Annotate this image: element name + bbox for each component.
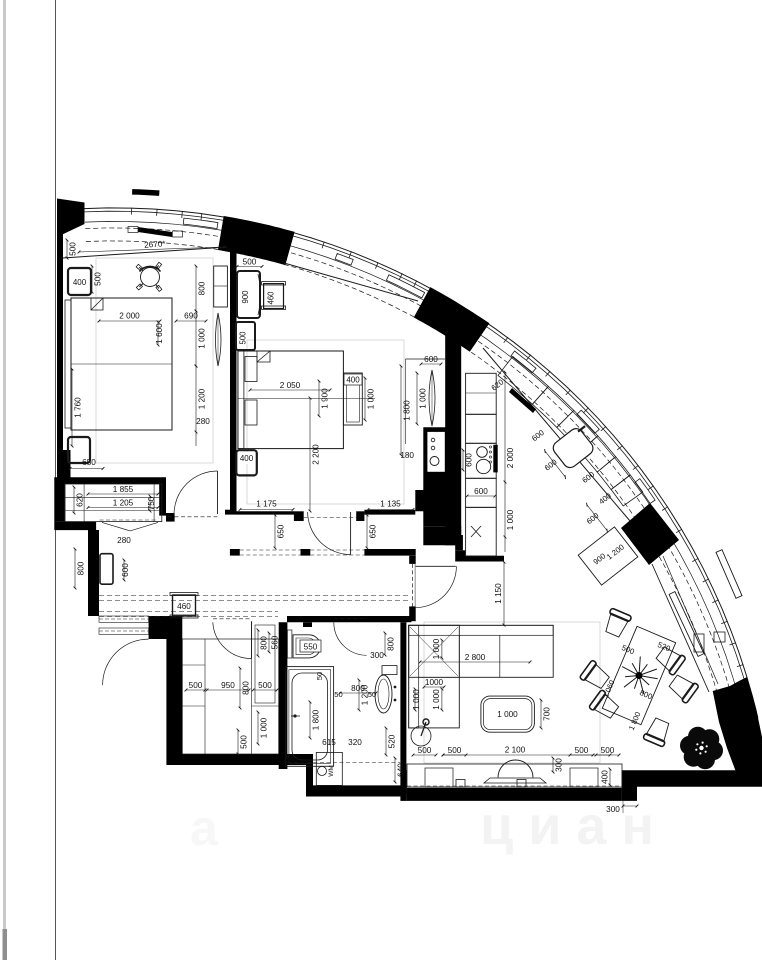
svg-text:2 200: 2 200 — [311, 444, 320, 465]
svg-text:2 100: 2 100 — [505, 746, 526, 755]
svg-text:900: 900 — [241, 290, 250, 304]
svg-text:600: 600 — [424, 355, 438, 364]
svg-text:1 000: 1 000 — [412, 689, 421, 710]
svg-text:1 175: 1 175 — [256, 500, 277, 509]
svg-text:500: 500 — [239, 735, 248, 749]
svg-text:500: 500 — [418, 746, 432, 755]
svg-text:WM: WM — [328, 765, 335, 777]
svg-text:600: 600 — [121, 563, 130, 577]
svg-text:1 000: 1 000 — [432, 638, 441, 659]
svg-text:1 150: 1 150 — [494, 583, 503, 604]
svg-text:600: 600 — [464, 453, 473, 467]
svg-text:400: 400 — [600, 770, 609, 784]
svg-text:650: 650 — [82, 458, 96, 467]
svg-text:800: 800 — [259, 636, 268, 650]
svg-text:500: 500 — [448, 746, 462, 755]
svg-text:циан: циан — [480, 796, 669, 856]
svg-text:2 800: 2 800 — [465, 653, 486, 662]
svg-text:950: 950 — [221, 681, 235, 690]
svg-text:1 855: 1 855 — [113, 485, 134, 494]
svg-text:2670*: 2670* — [144, 239, 167, 250]
svg-text:550: 550 — [304, 643, 318, 652]
svg-text:400: 400 — [346, 376, 360, 385]
svg-text:1 900: 1 900 — [320, 388, 329, 409]
svg-text:1 000: 1 000 — [259, 717, 268, 738]
svg-text:2 000: 2 000 — [119, 312, 140, 321]
svg-text:1 800: 1 800 — [402, 400, 411, 421]
svg-text:620: 620 — [75, 493, 84, 507]
svg-text:750: 750 — [147, 496, 156, 510]
svg-text:400: 400 — [240, 454, 254, 463]
svg-text:1 760: 1 760 — [74, 397, 83, 418]
svg-text:320: 320 — [348, 738, 362, 747]
svg-text:800: 800 — [76, 561, 85, 575]
svg-text:1000: 1000 — [425, 678, 444, 687]
svg-text:600: 600 — [474, 487, 488, 496]
svg-text:1 000: 1 000 — [432, 689, 441, 710]
svg-text:640: 640 — [396, 763, 405, 777]
svg-text:2 050: 2 050 — [280, 381, 301, 390]
svg-text:460: 460 — [177, 602, 191, 611]
svg-text:560: 560 — [270, 635, 279, 649]
svg-text:800: 800 — [386, 637, 395, 651]
svg-text:500: 500 — [601, 746, 615, 755]
svg-text:1 600: 1 600 — [155, 323, 164, 344]
svg-text:300: 300 — [370, 651, 384, 660]
svg-text:50: 50 — [315, 672, 324, 680]
svg-text:800: 800 — [197, 281, 206, 295]
svg-text:1 200: 1 200 — [360, 684, 369, 705]
svg-text:50: 50 — [334, 690, 342, 699]
svg-text:300: 300 — [606, 805, 620, 814]
svg-text:1 205: 1 205 — [113, 499, 134, 508]
svg-text:1 000: 1 000 — [366, 388, 375, 409]
svg-text:1 135: 1 135 — [380, 500, 401, 509]
svg-text:500: 500 — [69, 242, 78, 256]
svg-text:1 000: 1 000 — [197, 328, 206, 349]
svg-text:300: 300 — [554, 758, 563, 772]
svg-text:280: 280 — [196, 417, 210, 426]
svg-text:500: 500 — [243, 258, 257, 267]
svg-text:180: 180 — [400, 451, 414, 460]
svg-text:520: 520 — [387, 734, 396, 748]
svg-text:500: 500 — [93, 272, 102, 286]
svg-text:1 000: 1 000 — [418, 388, 427, 409]
svg-text:650: 650 — [368, 524, 377, 538]
svg-text:700: 700 — [542, 707, 551, 721]
svg-text:500: 500 — [258, 681, 272, 690]
svg-text:400: 400 — [73, 278, 87, 287]
svg-text:1 200: 1 200 — [197, 388, 206, 409]
svg-text:280: 280 — [117, 536, 131, 545]
svg-text:500: 500 — [239, 331, 248, 345]
svg-text:500: 500 — [189, 681, 203, 690]
svg-text:650: 650 — [276, 524, 285, 538]
svg-text:615: 615 — [322, 738, 336, 747]
svg-text:800: 800 — [241, 681, 250, 695]
svg-text:а: а — [190, 800, 219, 856]
svg-text:1 000: 1 000 — [506, 509, 515, 530]
svg-text:1 800: 1 800 — [311, 709, 320, 730]
svg-text:2 000: 2 000 — [506, 447, 515, 468]
svg-text:500: 500 — [575, 746, 589, 755]
svg-text:1 000: 1 000 — [497, 710, 518, 719]
svg-text:460: 460 — [267, 291, 276, 305]
